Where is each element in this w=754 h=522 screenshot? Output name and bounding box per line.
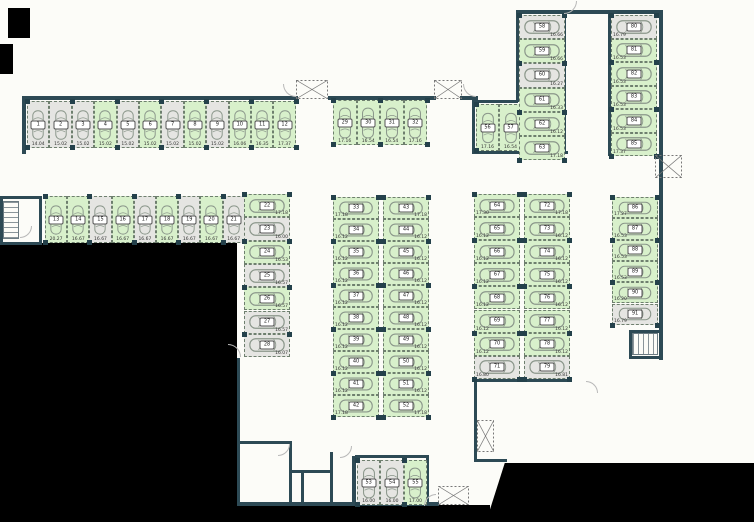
stall-area: 16.07: [275, 351, 288, 356]
column-marker: [221, 194, 226, 199]
parking-stall[interactable]: 415.02: [94, 101, 116, 148]
parking-stall[interactable]: 2116.67: [223, 196, 245, 243]
stall-number: 84: [627, 116, 642, 125]
parking-stall[interactable]: 1416.67: [67, 196, 89, 243]
parking-stall[interactable]: 6317.18: [519, 136, 565, 160]
column-marker: [115, 145, 120, 150]
parking-stall[interactable]: 215.02: [49, 101, 71, 148]
stall-area: 16.53: [614, 234, 627, 239]
parking-stall[interactable]: 515.02: [117, 101, 139, 148]
stall-number: 85: [627, 140, 642, 149]
stall-number: 68: [490, 293, 505, 302]
parking-stall[interactable]: 7916.81: [524, 356, 570, 379]
parking-stall[interactable]: 2716.57: [244, 311, 290, 334]
stall-number: 75: [540, 270, 555, 279]
stall-number: 72: [540, 201, 555, 210]
parking-stall[interactable]: 815.02: [184, 101, 206, 148]
stall-number: 77: [540, 317, 555, 326]
stall-number: 69: [490, 317, 505, 326]
stall-area: 16.12: [476, 327, 489, 332]
stall-area: 15.02: [140, 142, 160, 147]
blocked-area: [486, 463, 754, 522]
parking-stall[interactable]: 2917.16: [333, 100, 357, 145]
parking-stall[interactable]: 5816.66: [519, 15, 565, 39]
stall-area: 16.54: [358, 139, 380, 144]
stall-number: 57: [503, 123, 518, 132]
parking-stall[interactable]: 6116.33: [519, 88, 565, 112]
parking-stall[interactable]: 3217.16: [404, 100, 428, 145]
stall-number: 71: [490, 363, 505, 372]
stall-number: 55: [408, 478, 423, 487]
stall-area: 16.12: [555, 303, 568, 308]
parking-stall[interactable]: 7016.12: [474, 333, 520, 356]
stall-number: 66: [490, 247, 505, 256]
parking-stall[interactable]: 3616.12: [333, 263, 379, 285]
stall-number: 31: [384, 118, 399, 127]
stall-area: 16.79: [614, 319, 627, 324]
column-marker: [474, 102, 479, 107]
parking-stall[interactable]: 1916.67: [178, 196, 200, 243]
stall-number: 25: [260, 271, 275, 280]
stall-number: 73: [540, 224, 555, 233]
stall-number: 14: [71, 215, 86, 224]
stall-number: 29: [337, 118, 352, 127]
stall-number: 36: [349, 270, 364, 279]
column-marker: [176, 194, 181, 199]
stall-area: 16.12: [414, 389, 427, 394]
column-marker: [402, 458, 407, 463]
parking-stall[interactable]: 6016.27: [519, 63, 565, 87]
stall-number: 78: [540, 340, 555, 349]
stall-area: 17.16: [405, 139, 427, 144]
stall-area: 17.37: [613, 150, 626, 155]
stall-number: 50: [399, 358, 414, 367]
parking-stall[interactable]: 2217.18: [244, 194, 290, 217]
parking-stall[interactable]: 7116.80: [474, 356, 520, 379]
stall-number: 42: [349, 402, 364, 411]
stall-number: 64: [490, 201, 505, 210]
stall-number: 74: [540, 247, 555, 256]
parking-stall[interactable]: 5416.00: [380, 460, 403, 505]
parking-stall[interactable]: 7816.12: [524, 333, 570, 356]
stall-area: 15.02: [207, 142, 227, 147]
parking-stall[interactable]: 715.02: [161, 101, 183, 148]
parking-stall[interactable]: 4616.12: [383, 263, 429, 285]
column-marker: [517, 158, 522, 163]
column-marker: [562, 61, 567, 66]
parking-stall[interactable]: 1816.67: [156, 196, 178, 243]
parking-stall[interactable]: 8216.53: [611, 62, 657, 86]
stall-number: 27: [260, 318, 275, 327]
column-marker: [294, 99, 299, 104]
parking-stall[interactable]: 315.02: [72, 101, 94, 148]
stall-number: 7: [165, 120, 180, 129]
parking-stall[interactable]: 5517.00: [404, 460, 427, 505]
column-marker: [204, 99, 209, 104]
parking-stall[interactable]: 615.02: [139, 101, 161, 148]
stall-number: 11: [255, 120, 270, 129]
stall-number: 76: [540, 293, 555, 302]
floor-plan: 114.04215.02315.02415.02515.02615.02715.…: [0, 0, 754, 522]
parking-stall[interactable]: 4217.18: [333, 395, 379, 417]
stall-number: 45: [399, 248, 414, 257]
stall-number: 86: [628, 203, 643, 212]
parking-stall[interactable]: 1016.06: [229, 101, 251, 148]
parking-stall[interactable]: 7716.12: [524, 310, 570, 333]
parking-stall[interactable]: 2616.57: [244, 287, 290, 310]
parking-stall[interactable]: 3116.54: [380, 100, 404, 145]
blocked-area: [237, 505, 490, 522]
stall-area: 16.67: [68, 237, 88, 242]
stall-number: 83: [627, 93, 642, 102]
column-marker: [567, 331, 572, 336]
parking-stall[interactable]: 6916.12: [474, 310, 520, 333]
parking-stall[interactable]: 6616.12: [474, 240, 520, 263]
parking-stall[interactable]: 7516.12: [524, 263, 570, 286]
stall-number: 9: [210, 120, 225, 129]
parking-stall[interactable]: 2816.07: [244, 334, 290, 357]
wall-segment: [477, 459, 507, 462]
stairs-icon: [3, 201, 19, 239]
stall-area: 16.53: [613, 56, 626, 61]
column-marker: [242, 332, 247, 337]
column-marker: [567, 238, 572, 243]
stall-number: 18: [160, 215, 175, 224]
column-marker: [426, 239, 431, 244]
column-marker: [654, 60, 659, 65]
column-marker: [655, 238, 660, 243]
parking-stall[interactable]: 6716.12: [474, 263, 520, 286]
wall-segment: [289, 470, 333, 473]
stall-area: 16.12: [550, 130, 563, 135]
column-marker: [355, 458, 360, 463]
stall-number: 80: [627, 22, 642, 31]
stall-area: 16.12: [335, 257, 348, 262]
stall-number: 63: [535, 144, 550, 153]
stall-area: 15.02: [185, 142, 205, 147]
parking-stall[interactable]: 7416.12: [524, 240, 570, 263]
stall-number: 24: [260, 248, 275, 257]
stall-number: 28: [260, 341, 275, 350]
stall-number: 17: [137, 215, 152, 224]
column-marker: [610, 323, 615, 328]
stall-area: 16.53: [614, 255, 627, 260]
stall-number: 2: [53, 120, 68, 129]
column-marker: [331, 195, 336, 200]
column-marker: [522, 331, 527, 336]
stall-area: 16.12: [414, 345, 427, 350]
stall-number: 26: [260, 294, 275, 303]
parking-stall[interactable]: 114.04: [27, 101, 49, 148]
column-marker: [287, 285, 292, 290]
stall-number: 4: [98, 120, 113, 129]
blocked-area: [8, 8, 30, 38]
wall-segment: [352, 456, 356, 505]
door-arc: [228, 344, 241, 357]
wall-segment: [473, 100, 518, 103]
door-arc: [340, 446, 352, 458]
parking-stall[interactable]: 4016.12: [333, 351, 379, 373]
stall-area: 16.67: [90, 237, 110, 242]
stall-number: 62: [535, 119, 550, 128]
stall-number: 43: [399, 204, 414, 213]
stall-number: 16: [115, 215, 130, 224]
column-marker: [381, 239, 386, 244]
column-marker: [517, 13, 522, 18]
parking-stall[interactable]: 8617.27: [612, 197, 658, 218]
stall-area: 15.02: [95, 142, 115, 147]
column-marker: [204, 145, 209, 150]
stall-area: 16.12: [476, 257, 489, 262]
stall-area: 15.02: [50, 142, 70, 147]
column-marker: [517, 61, 522, 66]
parking-stall[interactable]: 2516.57: [244, 264, 290, 287]
stall-number: 90: [628, 288, 643, 297]
column-marker: [287, 192, 292, 197]
column-marker: [115, 99, 120, 104]
parking-stall[interactable]: 8716.53: [612, 218, 658, 239]
wall-segment: [301, 472, 304, 505]
column-marker: [331, 327, 336, 332]
parking-stall[interactable]: 1616.67: [112, 196, 134, 243]
column-marker: [355, 502, 360, 507]
stall-number: 8: [187, 120, 202, 129]
parking-stall[interactable]: 915.02: [206, 101, 228, 148]
stall-number: 13: [49, 215, 64, 224]
wall-segment: [472, 100, 475, 154]
parking-stall[interactable]: 6516.12: [474, 217, 520, 240]
stall-area: 16.79: [613, 33, 626, 38]
stall-number: 48: [399, 314, 414, 323]
wall-segment: [355, 455, 429, 458]
elevator-shaft-icon: [434, 80, 462, 99]
column-marker: [426, 415, 431, 420]
stall-area: 17.37: [274, 142, 294, 147]
parking-stall[interactable]: 8517.37: [611, 133, 657, 157]
wall-segment: [0, 242, 42, 245]
stall-area: 17.18: [275, 211, 288, 216]
stall-area: 16.12: [555, 350, 568, 355]
column-marker: [609, 107, 614, 112]
stall-area: 16.53: [613, 103, 626, 108]
parking-stall[interactable]: 3317.18: [333, 197, 379, 219]
parking-stall[interactable]: 8316.53: [611, 86, 657, 110]
column-marker: [378, 142, 383, 147]
wall-segment: [516, 10, 663, 14]
column-marker: [132, 240, 137, 245]
parking-stall[interactable]: 5016.12: [383, 351, 429, 373]
stall-area: 15.02: [162, 142, 182, 147]
column-marker: [567, 284, 572, 289]
column-marker: [472, 238, 477, 243]
stall-area: 17.18: [414, 213, 427, 218]
wall-segment: [629, 356, 662, 359]
parking-stall[interactable]: 6417.30: [474, 194, 520, 217]
parking-stall[interactable]: 1320.27: [45, 196, 67, 243]
stall-number: 49: [399, 336, 414, 345]
column-marker: [472, 284, 477, 289]
parking-stall[interactable]: 4116.12: [333, 373, 379, 395]
column-marker: [87, 240, 92, 245]
parking-stall[interactable]: 4916.12: [383, 329, 429, 351]
column-marker: [381, 371, 386, 376]
parking-stall[interactable]: 2416.53: [244, 241, 290, 264]
stall-area: 16.53: [275, 258, 288, 263]
column-marker: [43, 240, 48, 245]
wall-segment: [0, 196, 42, 199]
column-marker: [378, 98, 383, 103]
parking-stall[interactable]: 8016.79: [611, 15, 657, 39]
parking-stall[interactable]: 1217.37: [273, 101, 295, 148]
column-marker: [426, 327, 431, 332]
stall-number: 88: [628, 246, 643, 255]
parking-stall[interactable]: 3916.12: [333, 329, 379, 351]
parking-stall[interactable]: 8116.53: [611, 39, 657, 63]
stall-area: 16.12: [335, 389, 348, 394]
parking-stall[interactable]: 9016.20: [612, 282, 658, 303]
stall-number: 15: [93, 215, 108, 224]
stall-area: 16.53: [614, 276, 627, 281]
stall-number: 91: [628, 310, 643, 319]
stall-number: 67: [490, 270, 505, 279]
parking-stall[interactable]: 3516.12: [333, 241, 379, 263]
parking-stall[interactable]: 7217.18: [524, 194, 570, 217]
stall-number: 22: [260, 201, 275, 210]
column-marker: [567, 377, 572, 382]
parking-stall[interactable]: 6816.12: [474, 286, 520, 309]
column-marker: [609, 154, 614, 159]
column-marker: [562, 158, 567, 163]
column-marker: [331, 283, 336, 288]
wall-segment: [659, 10, 663, 360]
stall-number: 44: [399, 226, 414, 235]
parking-stall[interactable]: 5617.16: [476, 104, 499, 151]
stall-area: 16.53: [613, 127, 626, 132]
column-marker: [522, 284, 527, 289]
column-marker: [402, 502, 407, 507]
parking-stall[interactable]: 2316.00: [244, 217, 290, 240]
column-marker: [381, 283, 386, 288]
stall-area: 16.12: [335, 235, 348, 240]
parking-stall[interactable]: 4317.18: [383, 197, 429, 219]
stall-number: 10: [232, 120, 247, 129]
column-marker: [609, 60, 614, 65]
stall-area: 16.27: [550, 82, 563, 87]
wall-segment: [330, 452, 333, 505]
stall-number: 20: [204, 215, 219, 224]
elevator-shaft-icon: [477, 420, 494, 452]
column-marker: [249, 99, 254, 104]
parking-stall[interactable]: 7616.12: [524, 286, 570, 309]
stall-area: 17.18: [335, 411, 348, 416]
column-marker: [425, 98, 430, 103]
parking-stall[interactable]: 7316.12: [524, 217, 570, 240]
column-marker: [159, 145, 164, 150]
stall-number: 47: [399, 292, 414, 301]
parking-stall[interactable]: 1116.35: [251, 101, 273, 148]
stall-area: 16.53: [613, 80, 626, 85]
stall-area: 16.54: [381, 139, 403, 144]
parking-stall[interactable]: 3416.12: [333, 219, 379, 241]
stall-area: 16.12: [335, 345, 348, 350]
parking-stall[interactable]: 3016.54: [357, 100, 381, 145]
column-marker: [25, 145, 30, 150]
parking-stall[interactable]: 5916.66: [519, 39, 565, 63]
column-marker: [609, 13, 614, 18]
stall-area: 16.67: [113, 237, 133, 242]
stall-area: 16.12: [335, 301, 348, 306]
stall-number: 38: [349, 314, 364, 323]
stall-area: 16.66: [550, 33, 563, 38]
stall-number: 56: [480, 123, 495, 132]
parking-stall[interactable]: 4816.12: [383, 307, 429, 329]
column-marker: [654, 107, 659, 112]
stall-number: 61: [535, 95, 550, 104]
parking-stall[interactable]: 2016.67: [200, 196, 222, 243]
stall-area: 16.67: [224, 237, 244, 242]
stall-area: 17.18: [555, 211, 568, 216]
door-arc: [586, 381, 598, 393]
parking-stall[interactable]: 3716.12: [333, 285, 379, 307]
wall-segment: [237, 358, 240, 506]
parking-stall[interactable]: 1716.67: [134, 196, 156, 243]
column-marker: [242, 192, 247, 197]
stall-number: 60: [535, 71, 550, 80]
stall-area: 16.12: [476, 303, 489, 308]
stall-area: 17.16: [334, 139, 356, 144]
stall-area: 16.12: [335, 279, 348, 284]
blocked-area: [0, 44, 13, 74]
stall-number: 87: [628, 224, 643, 233]
stall-number: 65: [490, 224, 505, 233]
parking-stall[interactable]: 5116.12: [383, 373, 429, 395]
stall-number: 21: [226, 215, 241, 224]
parking-stall[interactable]: 5316.00: [357, 460, 380, 505]
parking-stall[interactable]: 8916.53: [612, 261, 658, 282]
column-marker: [242, 285, 247, 290]
parking-stall[interactable]: 8816.53: [612, 240, 658, 261]
column-marker: [425, 142, 430, 147]
wall-segment: [39, 196, 42, 245]
parking-stall[interactable]: 3816.12: [333, 307, 379, 329]
parking-stall[interactable]: 1516.67: [89, 196, 111, 243]
parking-stall[interactable]: 8416.53: [611, 109, 657, 133]
stall-number: 3: [75, 120, 90, 129]
parking-stall[interactable]: 4516.12: [383, 241, 429, 263]
column-marker: [287, 332, 292, 337]
parking-stall[interactable]: 4716.12: [383, 285, 429, 307]
column-marker: [655, 195, 660, 200]
elevator-shaft-icon: [655, 155, 682, 178]
stall-area: 14.04: [28, 142, 48, 147]
column-marker: [132, 194, 137, 199]
column-marker: [517, 110, 522, 115]
column-marker: [242, 239, 247, 244]
stall-number: 32: [408, 118, 423, 127]
parking-stall[interactable]: 4416.12: [383, 219, 429, 241]
stall-area: 16.12: [476, 350, 489, 355]
column-marker: [474, 148, 479, 153]
parking-stall[interactable]: 6216.12: [519, 112, 565, 136]
parking-stall[interactable]: 9116.79: [612, 304, 658, 325]
stall-area: 17.30: [476, 211, 489, 216]
column-marker: [426, 195, 431, 200]
column-marker: [426, 283, 431, 288]
column-marker: [472, 192, 477, 197]
column-marker: [381, 327, 386, 332]
parking-stall[interactable]: 5217.18: [383, 395, 429, 417]
stall-area: 16.35: [252, 142, 272, 147]
